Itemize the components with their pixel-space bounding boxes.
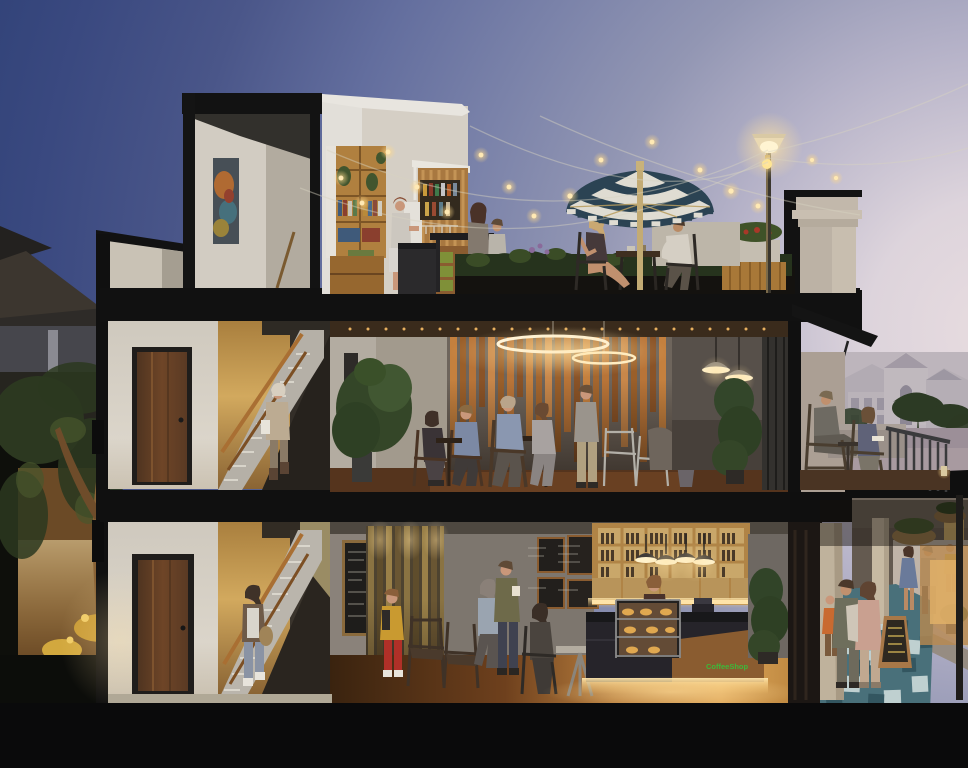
svg-text:CoffeeShop: CoffeeShop [706, 662, 749, 671]
